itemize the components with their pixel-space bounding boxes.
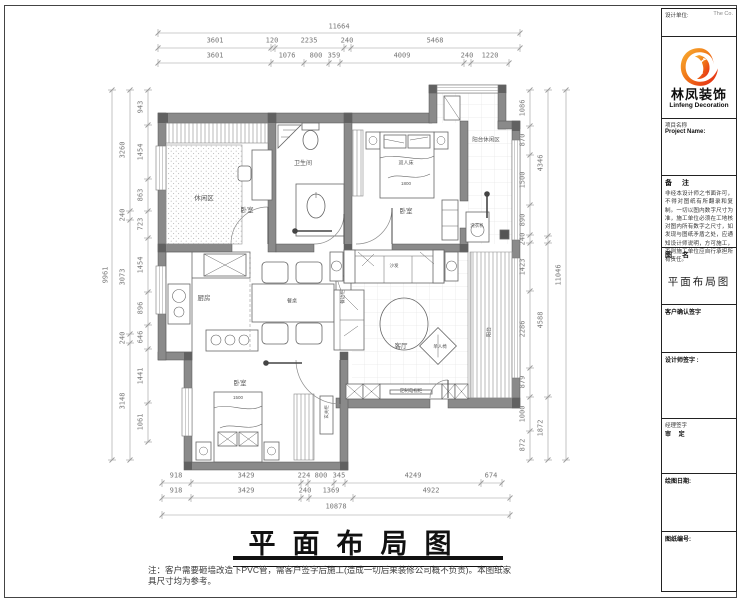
shower-icon: [278, 125, 301, 148]
dimension-label: 1500: [520, 172, 527, 189]
side-sofa-icon: [334, 290, 364, 350]
window: [156, 266, 166, 314]
project-label-en: Project Name:: [665, 129, 733, 135]
room-label: 阳台: [488, 327, 493, 337]
wall: [448, 398, 520, 408]
remark-section: 备 注 非经本设计师之书面许可，不得对图纸有所翻录和复制。一切以图内数字尺寸为准…: [662, 176, 736, 248]
dimension-label: 345: [333, 473, 346, 480]
room-label: 1500: [233, 396, 243, 401]
dimension-label: 3148: [120, 393, 127, 410]
chair-icon: [238, 166, 251, 181]
wall: [184, 462, 348, 470]
dimension-label: 2286: [520, 321, 527, 338]
room-label: 玄关柜: [325, 405, 330, 419]
room-label: 洗衣机: [470, 224, 484, 229]
room-label: 双人床: [398, 162, 413, 167]
dimension-label: 4922: [423, 488, 440, 495]
room-label: 单人椅: [433, 345, 447, 350]
dimension-label: 240: [120, 209, 127, 222]
chair-icon: [262, 323, 288, 344]
dimension-label: 4009: [394, 53, 411, 60]
wall: [344, 113, 352, 252]
logo-section: 林凤装饰 Linfeng Decoration: [662, 37, 736, 119]
dimension-label: 674: [485, 473, 498, 480]
remark-header: 备 注: [665, 178, 733, 188]
dimension-label: 1369: [323, 488, 340, 495]
dimension-label: 224: [298, 473, 311, 480]
room-label: 阳台休闲区: [472, 138, 500, 144]
dimension-label: 3073: [120, 269, 127, 286]
room-label: 沙发: [390, 264, 399, 269]
dimension-label: 1441: [138, 368, 145, 385]
window: [156, 146, 166, 190]
sheet-no-label: 图纸编号:: [665, 534, 733, 543]
nightstand-icon: [264, 442, 279, 460]
wall: [340, 352, 348, 470]
designer-sign-label: 设计师签字 :: [665, 355, 733, 364]
dimension-label: 240: [120, 332, 127, 345]
room-label: 厨房: [198, 296, 211, 303]
fridge-icon: [204, 254, 246, 276]
dimension-label: 879: [520, 376, 527, 389]
wall: [336, 398, 430, 408]
dimension-label: 943: [138, 101, 145, 114]
logo-text-cn: 林凤装饰: [671, 88, 727, 102]
dimension-label: 11664: [328, 24, 349, 31]
wall: [460, 121, 468, 201]
toilet-icon: [302, 123, 319, 150]
window: [512, 258, 520, 378]
project-label-cn: 项目名称: [665, 121, 733, 129]
drawing-name-section: 图 名 平面布局图: [662, 248, 736, 305]
dimension-label: 4346: [538, 155, 545, 172]
end-table-icon: [330, 252, 343, 281]
room-label: 卧室: [400, 209, 413, 216]
nightstand-icon: [366, 132, 380, 149]
room-label: 餐边柜: [341, 290, 346, 304]
room-label: 客厅: [395, 344, 408, 351]
dimension-label: 359: [328, 53, 341, 60]
drawing-name-value: 平面布局图: [665, 274, 733, 289]
manager-sign-label: 经理签字: [665, 421, 733, 429]
door-arc: [356, 208, 392, 244]
dimension-label: 1076: [279, 53, 296, 60]
date-label: 绘图日期:: [665, 476, 733, 485]
date-section: 绘图日期:: [662, 474, 736, 532]
client-sign-section: 客户确认签字: [662, 305, 736, 353]
room-label: 餐桌: [287, 300, 297, 305]
dimension-label: 1454: [138, 144, 145, 161]
dimension-label: 240: [461, 53, 474, 60]
dimension-label: 870: [520, 134, 527, 147]
sink-icon: [296, 184, 344, 236]
dimension-label: 872: [520, 439, 527, 452]
room-label: 定制电视柜: [400, 389, 423, 394]
nightstand-icon: [196, 442, 211, 460]
floor-plan: [0, 0, 740, 600]
dimension-label: 1423: [520, 259, 527, 276]
dimension-label: 3429: [238, 488, 255, 495]
plant-box-icon: [500, 230, 509, 239]
sheet-no-section: 图纸编号:: [662, 532, 736, 591]
dimension-label: 863: [138, 189, 145, 202]
logo-text-en: Linfeng Decoration: [669, 102, 728, 109]
manager-sign-section: 经理签字 审 定: [662, 419, 736, 474]
dimension-label: 1061: [138, 414, 145, 431]
dresser-icon: [442, 200, 458, 240]
wall: [158, 113, 432, 123]
dimension-label: 1220: [482, 53, 499, 60]
closet-icon: [352, 130, 363, 196]
dimension-label: 890: [520, 214, 527, 227]
dimension-label: 646: [138, 331, 145, 344]
design-unit-label: 设计单位:: [665, 11, 689, 19]
window: [437, 85, 498, 93]
ac-unit-icon: [444, 96, 460, 120]
dimension-label: 723: [138, 218, 145, 231]
project-name-section: 项目名称 Project Name:: [662, 119, 736, 176]
chair-icon: [262, 262, 288, 283]
dimension-label: 1000: [520, 406, 527, 423]
dimension-label: 1454: [138, 257, 145, 274]
wall: [158, 244, 232, 252]
desk-icon: [252, 150, 272, 200]
dimension-label: 4249: [405, 473, 422, 480]
wardrobe-icon: [294, 394, 314, 460]
dimension-label: 1086: [520, 100, 527, 117]
sheet-note: 注：客户需要砸墙改造下PVC管，需客户签字后施工(造成一切后果装修公司概不负责)…: [148, 565, 516, 588]
dimension-label: 11046: [556, 264, 563, 285]
drawing-name-header: 图 名: [665, 250, 733, 260]
dimension-label: 1872: [538, 420, 545, 437]
nightstand-icon: [434, 132, 448, 149]
dimension-label: 240: [299, 488, 312, 495]
dimension-label: 5468: [427, 38, 444, 45]
room-label: 卧室: [241, 208, 254, 215]
dimension-label: 240: [341, 38, 354, 45]
title-block: 设计单位: The Co. 林凤装饰 Linfeng Decoration 项目…: [661, 8, 737, 592]
dimension-label: 2235: [301, 38, 318, 45]
drawing-sheet: 1166436011202235240546836011076800359400…: [0, 0, 740, 600]
dimension-label: 10878: [325, 504, 346, 511]
dimension-label: 3429: [238, 473, 255, 480]
room-label: 卧室: [234, 381, 247, 388]
design-unit-section: 设计单位: The Co.: [662, 9, 736, 37]
wall: [276, 244, 314, 252]
approval-label: 审 定: [665, 429, 733, 438]
room-label: 休闲区: [194, 196, 214, 203]
client-sign-label: 客户确认签字: [665, 307, 733, 316]
dimension-label: 120: [266, 38, 279, 45]
dimension-label: 240: [520, 233, 527, 246]
dimension-label: 4588: [538, 312, 545, 329]
bed-icon: [214, 392, 262, 462]
room-label: 卫生间: [294, 161, 312, 167]
dimension-label: 3601: [207, 38, 224, 45]
phoenix-logo-icon: [678, 46, 720, 88]
dimension-label: 918: [170, 488, 183, 495]
dimension-label: 918: [170, 473, 183, 480]
end-table-icon: [445, 252, 458, 281]
designer-sign-section: 设计师签字 :: [662, 353, 736, 419]
dimension-label: 800: [315, 473, 328, 480]
dimension-label: 3601: [207, 53, 224, 60]
dimension-label: 800: [310, 53, 323, 60]
chair-icon: [296, 323, 322, 344]
wardrobe-icon: [166, 123, 268, 143]
balcony-strip: [470, 252, 512, 398]
window: [182, 388, 192, 436]
corner-text: The Co.: [713, 11, 733, 17]
chair-icon: [296, 262, 322, 283]
dimension-label: 3260: [120, 142, 127, 159]
dimension-label: 896: [138, 302, 145, 315]
dimension-label: 9961: [103, 267, 110, 284]
room-label: 1800: [401, 182, 411, 187]
kitchen-sink-icon: [168, 284, 190, 324]
